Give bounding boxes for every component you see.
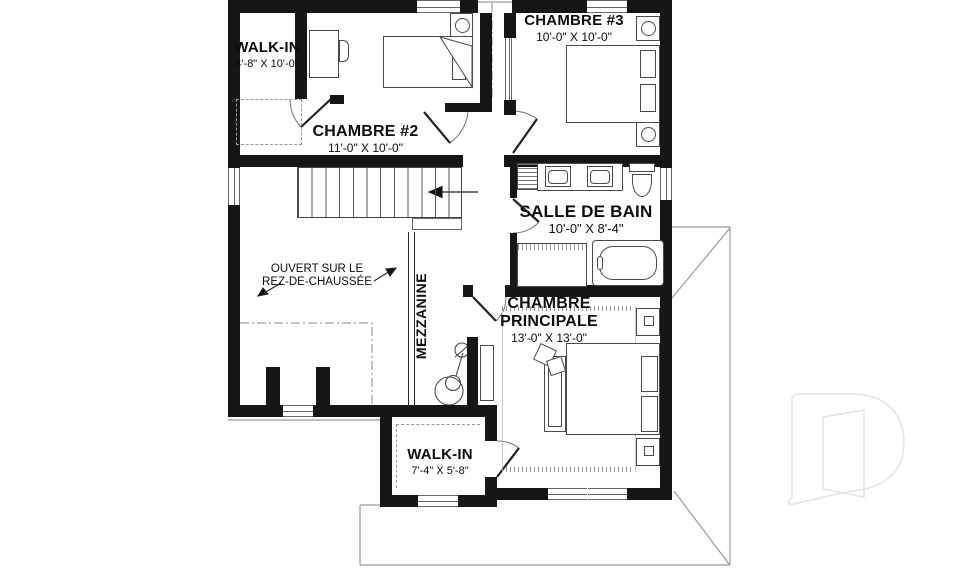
room-label-chambre-2: CHAMBRE #2 11'-0" X 10'-0" — [308, 123, 423, 155]
room-dims: 11'-0" X 10'-0" — [308, 142, 423, 155]
mezzanine-label: MEZZANINE — [414, 260, 430, 372]
tub-faucet-icon — [597, 256, 603, 270]
room-name: CHAMBRE #2 — [308, 123, 423, 141]
rug-fringe — [502, 467, 634, 472]
room-name: CHAMBRE #3 — [514, 13, 634, 30]
pillow-icon — [640, 84, 656, 112]
pillow-icon — [641, 396, 658, 432]
room-dims: 13'-0" X 13'-0" — [492, 332, 606, 345]
pillow-icon — [640, 50, 656, 78]
room-dims: 4'-8" X 10'-0" — [228, 58, 306, 70]
bathtub-basin-icon — [599, 246, 657, 280]
pillow-icon — [641, 356, 658, 392]
room-name: CHAMBRE PRINCIPALE — [492, 295, 606, 331]
bed-fold-lines — [0, 0, 960, 569]
open-to-below-line1: OUVERT SUR LE — [255, 263, 379, 276]
room-name: WALK-IN — [228, 40, 306, 57]
lamp-icon — [641, 21, 656, 36]
room-label-chambre-3: CHAMBRE #3 10'-0" X 10'-0" — [514, 13, 634, 44]
room-label-salle-de-bain: SALLE DE BAIN 10'-0" X 8'-4" — [513, 202, 659, 237]
room-name: WALK-IN — [395, 447, 485, 464]
room-label-walk-in-bottom: WALK-IN 7'-4" X 5'-8" — [395, 447, 485, 477]
floor-plan: WALK-IN 4'-8" X 10'-0" CHAMBRE #2 11'-0"… — [0, 0, 960, 569]
lamp-icon — [455, 18, 470, 33]
room-dims: 7'-4" X 5'-8" — [395, 465, 485, 477]
room-label-walk-in-top: WALK-IN 4'-8" X 10'-0" — [228, 40, 306, 70]
toilet-tank-icon — [629, 163, 655, 172]
nightstand-detail — [644, 446, 654, 456]
room-label-chambre-principale: CHAMBRE PRINCIPALE 13'-0" X 13'-0" — [492, 295, 606, 345]
sink-basin-icon — [548, 170, 568, 184]
linen-shelves-icon — [517, 163, 539, 190]
shower-glass-icon — [518, 244, 586, 250]
nightstand-detail — [644, 316, 654, 326]
room-name: SALLE DE BAIN — [513, 202, 659, 221]
room-dims: 10'-0" X 8'-4" — [513, 222, 659, 237]
lamp-icon — [641, 127, 656, 142]
open-to-below-line2: REZ-DE-CHAUSSÉE — [255, 276, 379, 289]
open-to-below-label: OUVERT SUR LE REZ-DE-CHAUSSÉE — [255, 263, 379, 289]
sink-basin-icon — [590, 170, 610, 184]
room-dims: 10'-0" X 10'-0" — [514, 31, 634, 44]
dresser-icon — [480, 345, 494, 401]
